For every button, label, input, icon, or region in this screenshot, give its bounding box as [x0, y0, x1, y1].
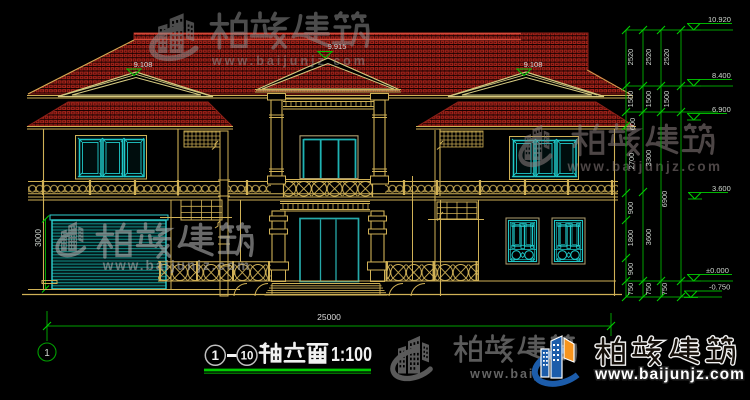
svg-text:10: 10 [241, 351, 254, 363]
svg-text:2520: 2520 [662, 49, 671, 66]
svg-text:6.900: 6.900 [712, 105, 731, 114]
svg-text:www.baijunjz.com: www.baijunjz.com [211, 54, 368, 68]
svg-text:1:100: 1:100 [331, 344, 372, 366]
svg-text:3600: 3600 [644, 229, 653, 246]
svg-text:1800: 1800 [626, 230, 635, 247]
svg-text:www.baijunjz.com: www.baijunjz.com [594, 366, 745, 383]
svg-text:3.600: 3.600 [712, 184, 731, 193]
svg-text:6900: 6900 [660, 191, 669, 208]
svg-text:3300: 3300 [644, 150, 653, 167]
svg-text:750: 750 [660, 283, 669, 296]
svg-text:1500: 1500 [626, 91, 635, 108]
svg-text:2520: 2520 [644, 49, 653, 66]
svg-text:±0.000: ±0.000 [706, 266, 729, 275]
svg-text:1500: 1500 [662, 91, 671, 108]
svg-text:750: 750 [626, 283, 635, 296]
svg-text:-0.750: -0.750 [709, 283, 730, 292]
svg-text:9.108: 9.108 [524, 60, 543, 69]
svg-text:www.baij: www.baij [469, 367, 540, 381]
svg-text:2520: 2520 [626, 49, 635, 66]
svg-text:8.400: 8.400 [712, 71, 731, 80]
svg-text:600: 600 [628, 118, 637, 131]
svg-text:25000: 25000 [317, 312, 341, 322]
svg-text:2700: 2700 [627, 153, 636, 170]
svg-text:900: 900 [626, 263, 635, 276]
svg-text:10.920: 10.920 [708, 15, 731, 24]
svg-text:750: 750 [644, 283, 653, 296]
svg-text:3000: 3000 [34, 229, 43, 247]
svg-text:www.baijunjz.com: www.baijunjz.com [102, 258, 252, 273]
svg-text:1500: 1500 [644, 91, 653, 108]
svg-text:1: 1 [212, 348, 220, 363]
svg-text:9.108: 9.108 [134, 60, 153, 69]
svg-text:1: 1 [44, 348, 50, 359]
svg-text:900: 900 [626, 202, 635, 215]
